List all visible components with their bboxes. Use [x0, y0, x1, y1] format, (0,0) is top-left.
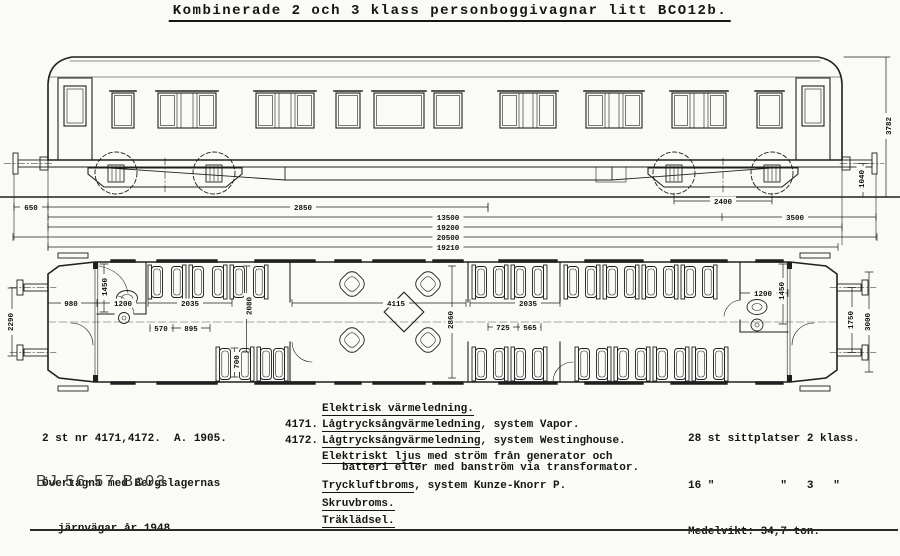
dim-label-20500: 20500 — [433, 233, 464, 243]
svg-text:3000: 3000 — [865, 313, 873, 332]
svg-text:2860: 2860 — [448, 311, 456, 330]
svg-text:1200: 1200 — [114, 301, 133, 309]
dim-label-2860: 2860 — [446, 307, 456, 333]
svg-text:20500: 20500 — [437, 235, 460, 243]
window-single — [334, 91, 362, 128]
armchair — [336, 268, 367, 299]
dim-label-19210: 19210 — [433, 243, 464, 253]
dim-label-650: 650 — [20, 203, 42, 213]
seats-3rd-class: 16 " " 3 " — [688, 479, 860, 495]
dim-label-3500: 3500 — [782, 213, 808, 223]
note-row-screwbrake: Skruvbroms. — [285, 498, 395, 510]
dim-label-2850: 2850 — [290, 203, 316, 213]
svg-text:1450: 1450 — [102, 278, 110, 297]
svg-text:4115: 4115 — [387, 301, 406, 309]
note-row-4172: 4172.Lågtrycksångvärmeledning, system We… — [285, 435, 626, 447]
note-number: 4171. — [285, 419, 322, 431]
saloon-table — [384, 292, 424, 332]
note-term: Elektrisk värmeledning. — [322, 403, 474, 416]
note-row-cladding: Träklädsel. — [285, 515, 395, 527]
note-row-airbrake: Tryckluftbroms, system Kunze-Knorr P. — [285, 480, 566, 492]
window-single — [432, 91, 464, 128]
dim-label-2080: 2080 — [244, 293, 254, 319]
plan-outline — [48, 262, 837, 382]
dim-label-700: 700 — [232, 352, 242, 372]
svg-text:570: 570 — [154, 326, 168, 334]
svg-text:980: 980 — [64, 301, 78, 309]
svg-text:13500: 13500 — [437, 215, 460, 223]
dim-label-3782: 3782 — [884, 113, 894, 139]
bogie-left — [88, 152, 242, 194]
end-door-right — [796, 78, 830, 160]
dim-label-1750: 1750 — [846, 307, 856, 333]
dim-label-2290: 2290 — [6, 309, 16, 335]
dim-label-1450-left: 1450 — [100, 274, 110, 300]
armchair — [412, 268, 443, 299]
dim-label-1040: 1040 — [857, 166, 867, 192]
dim-label-725: 725 — [493, 323, 513, 333]
note-term: Tryckluftbroms — [322, 480, 414, 493]
svg-text:1750: 1750 — [848, 311, 856, 330]
window-single — [110, 91, 136, 128]
side-elevation: 650 2850 2400 13500 3500 19200 20500 192… — [0, 57, 900, 253]
svg-text:3782: 3782 — [886, 117, 894, 136]
svg-text:2035: 2035 — [519, 301, 538, 309]
svg-text:1040: 1040 — [859, 170, 867, 189]
svg-text:2080: 2080 — [246, 297, 254, 316]
third-class-benches-left — [148, 265, 288, 381]
dim-label-4115: 4115 — [383, 299, 409, 309]
svg-text:565: 565 — [523, 325, 537, 333]
note-row-4171: 4171.Lågtrycksångvärmeledning, system Va… — [285, 419, 579, 431]
buffers-plan-left — [10, 280, 56, 360]
svg-text:725: 725 — [496, 325, 510, 333]
buffer-left-side — [4, 153, 52, 174]
dim-label-1450-right: 1450 — [777, 278, 787, 304]
dim-label-1200-left: 1200 — [110, 299, 136, 309]
note-row-heating: Elektrisk värmeledning. — [285, 403, 474, 415]
average-weight: Medelvikt: 34,7 ton. — [688, 525, 860, 541]
note-row-light-cont: batteri eller med banström via transform… — [285, 462, 639, 474]
window-triple — [156, 91, 218, 128]
dim-label-2035-right: 2035 — [515, 299, 541, 309]
svg-text:895: 895 — [184, 326, 198, 334]
armchair — [336, 324, 367, 355]
svg-text:2290: 2290 — [8, 313, 16, 332]
svg-text:2035: 2035 — [181, 301, 200, 309]
car-body-side — [48, 57, 842, 160]
svg-text:19210: 19210 — [437, 245, 460, 253]
svg-text:2850: 2850 — [294, 205, 313, 213]
dim-label-895: 895 — [181, 324, 201, 334]
window-triple — [498, 91, 558, 128]
svg-text:3500: 3500 — [786, 215, 805, 223]
note-term: Lågtrycksångvärmeledning — [322, 419, 480, 432]
dim-label-565: 565 — [520, 323, 540, 333]
dim-label-19200: 19200 — [433, 223, 464, 233]
side-windows — [110, 91, 784, 128]
window-triple — [670, 91, 728, 128]
bogie-right — [648, 152, 798, 194]
dim-label-570: 570 — [151, 324, 171, 334]
note-rest: , system Kunze-Knorr P. — [414, 480, 566, 492]
note-rest: , system Westinghouse. — [480, 435, 625, 447]
svg-text:2400: 2400 — [714, 199, 733, 207]
dim-label-980: 980 — [61, 299, 81, 309]
dim-label-2035-left: 2035 — [177, 299, 203, 309]
note-rest: batteri eller med banström via transform… — [322, 462, 639, 474]
dim-label-3000: 3000 — [863, 309, 873, 335]
note-term: Träklädsel. — [322, 515, 395, 528]
note-number: 4172. — [285, 435, 322, 447]
dim-label-2400: 2400 — [710, 197, 736, 207]
svg-text:650: 650 — [24, 205, 38, 213]
note-term: Lågtrycksångvärmeledning — [322, 435, 480, 448]
dim-label-1200-right: 1200 — [750, 289, 776, 299]
window-triple — [254, 91, 316, 128]
seats-2nd-class: 28 st sittplatser 2 klass. — [688, 432, 860, 448]
notes-right: 28 st sittplatser 2 klass. 16 " " 3 " Me… — [688, 401, 860, 556]
dim-label-13500: 13500 — [433, 213, 464, 223]
armchair — [412, 324, 443, 355]
drawing-code: BJ 56-57 Bc03 — [36, 473, 167, 491]
svg-text:1200: 1200 — [754, 291, 773, 299]
technical-drawing: 650 2850 2400 13500 3500 19200 20500 192… — [0, 0, 900, 400]
window-single — [755, 91, 784, 128]
window-triple — [584, 91, 644, 128]
window-wide — [372, 91, 426, 128]
notes-left-line1: 2 st nr 4171,4172. A. 1905. — [42, 432, 227, 447]
floor-plan: 2290 980 1450 1200 2035 570 895 2080 700… — [6, 253, 877, 391]
note-rest: , system Vapor. — [480, 419, 579, 431]
page-bottom-rule — [30, 529, 898, 531]
scanned-drawing-page: { "title": "Kombinerade 2 och 3 klass pe… — [0, 0, 900, 532]
svg-text:700: 700 — [234, 355, 242, 369]
end-door-left — [58, 78, 92, 160]
svg-text:19200: 19200 — [437, 225, 460, 233]
note-term: Skruvbroms. — [322, 498, 395, 511]
svg-text:1450: 1450 — [779, 282, 787, 301]
